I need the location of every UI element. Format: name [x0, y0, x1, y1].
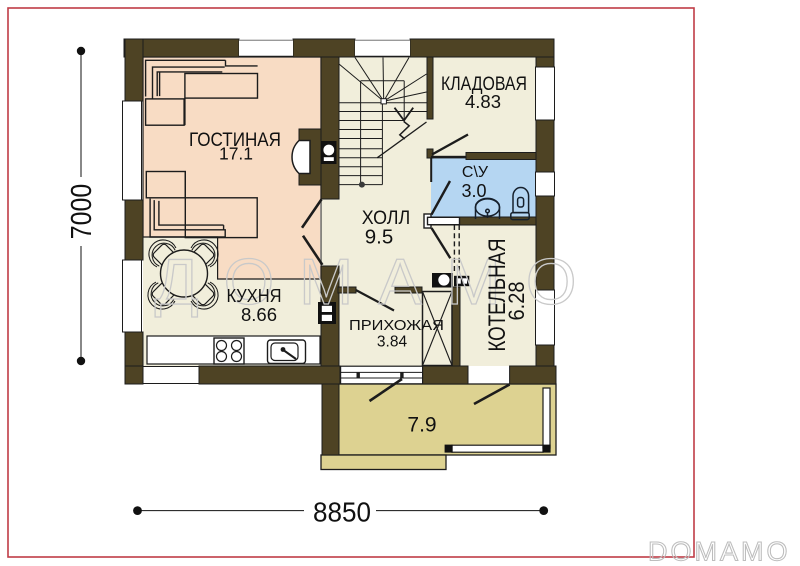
- svg-text:8.66: 8.66: [241, 304, 277, 325]
- svg-text:С\У: С\У: [462, 164, 489, 181]
- svg-text:3.0: 3.0: [461, 181, 486, 201]
- svg-text:8850: 8850: [313, 497, 371, 528]
- svg-text:ДОМАМО: ДОМАМО: [155, 245, 602, 318]
- svg-text:6.28: 6.28: [504, 282, 529, 321]
- svg-text:ПРИХОЖАЯ: ПРИХОЖАЯ: [349, 317, 444, 334]
- svg-text:17.1: 17.1: [219, 144, 253, 164]
- svg-text:4.83: 4.83: [465, 91, 501, 112]
- svg-text:7.9: 7.9: [407, 414, 436, 437]
- svg-text:9.5: 9.5: [365, 226, 394, 249]
- svg-text:DOMAMO: DOMAMO: [648, 537, 791, 566]
- svg-text:КУХНЯ: КУХНЯ: [227, 286, 282, 306]
- svg-text:7000: 7000: [65, 184, 97, 240]
- svg-text:3.84: 3.84: [377, 334, 408, 351]
